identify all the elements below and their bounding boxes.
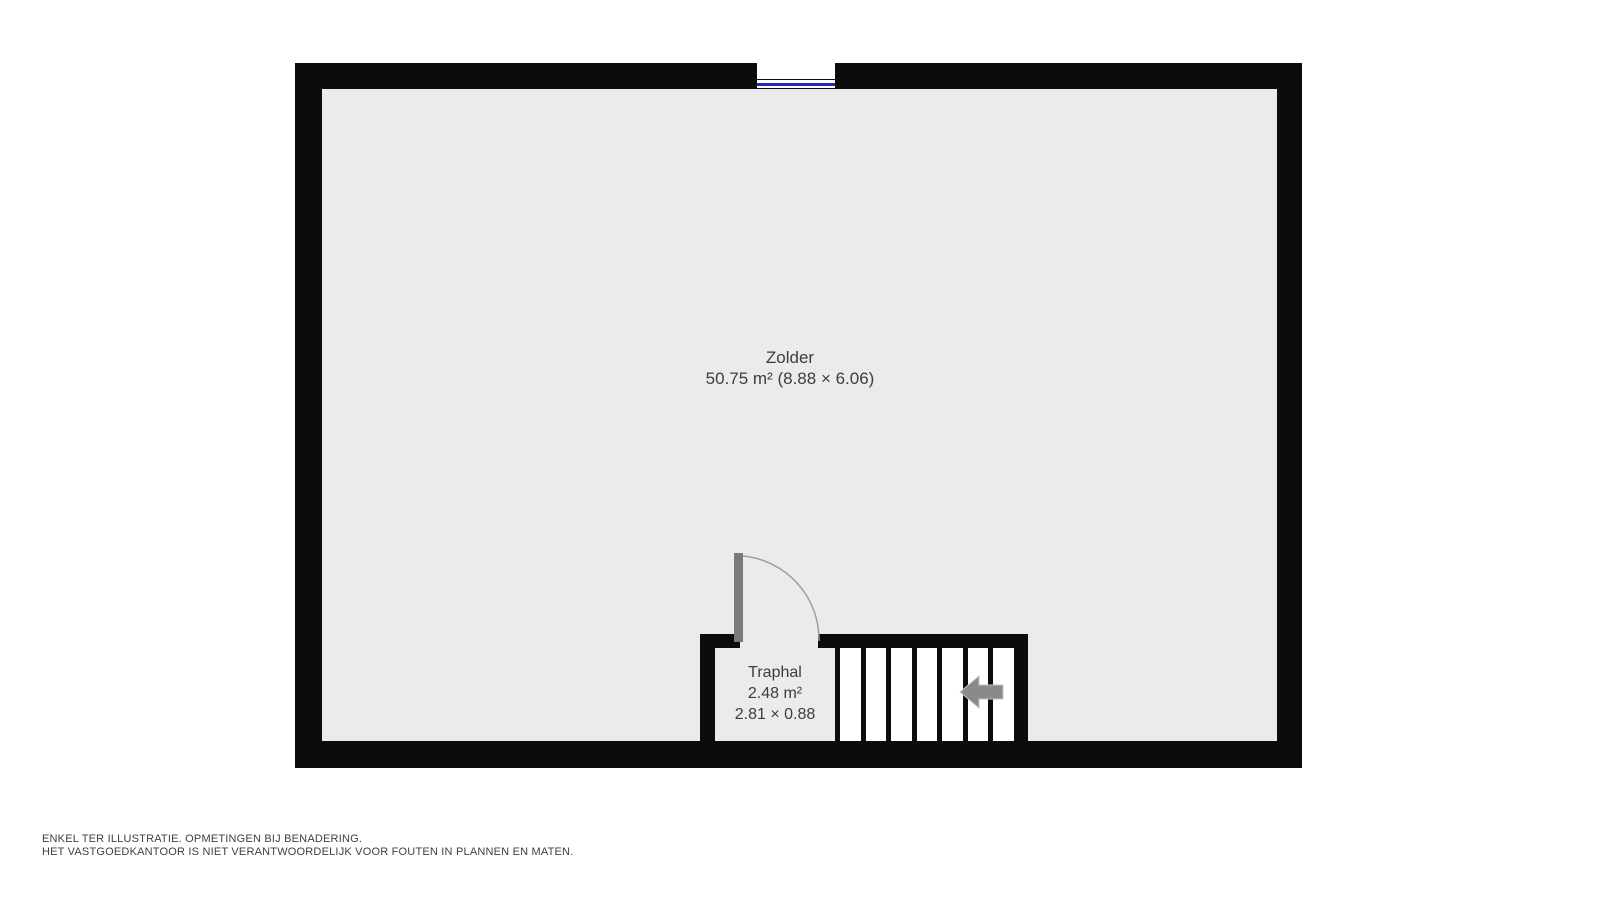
room-traphal-label: Traphal 2.48 m² 2.81 × 0.88	[715, 662, 835, 725]
window-symbol-icon	[757, 79, 835, 89]
room-dimensions: 2.81 × 0.88	[715, 704, 835, 725]
wall-segment-traphal-left	[700, 634, 715, 741]
disclaimer-line-2: HET VASTGOEDKANTOOR IS NIET VERANTWOORDE…	[42, 846, 573, 859]
disclaimer: ENKEL TER ILLUSTRATIE. OPMETINGEN BIJ BE…	[42, 833, 573, 859]
room-area: 2.48 m²	[715, 683, 835, 704]
staircase	[835, 648, 1014, 741]
stair-tread	[942, 648, 963, 741]
disclaimer-line-1: ENKEL TER ILLUSTRATIE. OPMETINGEN BIJ BE…	[42, 833, 573, 846]
stair-tread	[866, 648, 887, 741]
room-name: Traphal	[715, 662, 835, 683]
room-size: 50.75 m² (8.88 × 6.06)	[640, 368, 940, 389]
wall-segment-stairs-right	[1014, 634, 1028, 741]
floorplan-page: { "plan": { "rooms": [ { "id": "zolder",…	[0, 0, 1600, 900]
stair-tread	[993, 648, 1014, 741]
room-name: Zolder	[640, 347, 940, 368]
stair-tread	[840, 648, 861, 741]
door-leaf	[734, 553, 743, 642]
wall-segment-traphal-top-right	[818, 634, 1028, 648]
floorplan-canvas: Zolder 50.75 m² (8.88 × 6.06) Traphal 2.…	[295, 63, 1302, 768]
room-zolder-label: Zolder 50.75 m² (8.88 × 6.06)	[640, 347, 940, 389]
stair-tread	[917, 648, 938, 741]
stair-tread	[891, 648, 912, 741]
stair-tread	[968, 648, 989, 741]
window-glass-line	[757, 83, 835, 86]
room-zolder-floor	[322, 89, 1277, 741]
window-wall-gap	[757, 63, 835, 79]
